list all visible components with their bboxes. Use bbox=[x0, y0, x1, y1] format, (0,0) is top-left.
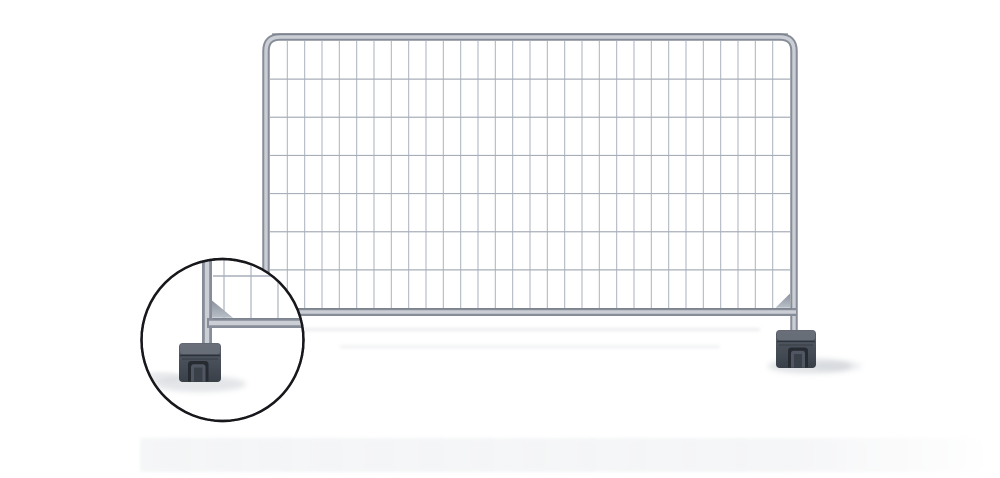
foot-shadow bbox=[814, 361, 862, 371]
foot-cap bbox=[777, 331, 815, 341]
product-photo-stage bbox=[0, 0, 1000, 478]
corner-gusset-right bbox=[776, 294, 791, 308]
inset-foot-shadow bbox=[141, 372, 183, 382]
ground-shadow-streak bbox=[340, 346, 720, 349]
detail-inset-magnifier bbox=[141, 248, 314, 421]
fence-panel bbox=[263, 34, 863, 374]
wire-mesh bbox=[270, 41, 790, 309]
inset-foot-arch-inner bbox=[194, 368, 203, 382]
foot-arch-inner bbox=[794, 354, 802, 368]
fence-foot-right bbox=[768, 330, 862, 374]
fence-product-illustration bbox=[0, 0, 1000, 478]
ground-shadow-streak bbox=[300, 328, 760, 331]
inset-foot-cap bbox=[180, 344, 220, 355]
bottom-rail bbox=[263, 309, 798, 312]
floor-highlight-band bbox=[140, 438, 1000, 472]
